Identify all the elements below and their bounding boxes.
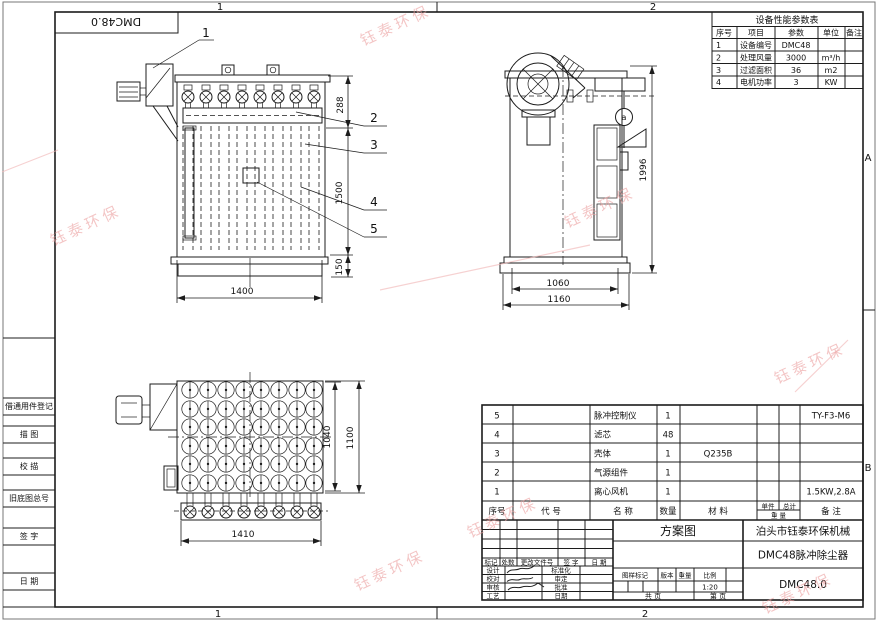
- dim-1060: 1060: [547, 279, 570, 289]
- bom-r5-qty: 1: [665, 412, 670, 422]
- sign-approve: 审定: [555, 574, 569, 583]
- scale-value: 1:20: [702, 584, 718, 592]
- bom-h-material: 材 料: [708, 506, 728, 517]
- sign-date: 日期: [555, 592, 569, 600]
- perf-r1-no: 1: [716, 41, 721, 50]
- watermark-text: 钰泰环保: [352, 546, 429, 594]
- perf-r4-no: 4: [716, 78, 721, 87]
- top-view: 1040 1100 1410: [116, 372, 365, 546]
- zone-bottom-1: 1: [215, 609, 221, 620]
- bom-h-weight: 重 量: [771, 512, 787, 520]
- dim-1100: 1100: [346, 426, 356, 449]
- front-dimensions: 288 1500 150 1400: [177, 76, 353, 303]
- zone-right-b: B: [865, 463, 872, 474]
- perf-r3-no: 3: [716, 66, 721, 75]
- front-view: 288 1500 150 1400 1 2 3 4 5: [117, 26, 387, 303]
- left-sidebar: 借通用件登记 描 图 校 描 旧底图总号 签 字 日 期: [3, 338, 55, 607]
- signature-scribble-2: [507, 578, 533, 582]
- bom-r5-note: TY-F3-M6: [811, 412, 851, 422]
- perf-r3-unit: m2: [825, 66, 838, 75]
- perf-r2-value: 3000: [786, 54, 806, 63]
- bom-h-code: 代 号: [541, 506, 561, 517]
- perf-h-unit: 单位: [823, 28, 839, 38]
- bom-h-name: 名 称: [613, 506, 633, 517]
- sidebar-label-tracing: 描 图: [20, 429, 39, 439]
- drawing-canvas: 1 2 1 2 A B DMC48.0 借通用件登记 描 图 校 描 旧底图总号…: [0, 0, 877, 622]
- dim-1996: 1996: [639, 158, 649, 181]
- zone-top-1: 1: [217, 2, 223, 13]
- sign-design: 设计: [487, 566, 501, 575]
- perf-r1-value: DMC48: [782, 41, 811, 50]
- bom-r1-qty: 1: [665, 488, 670, 498]
- dim-1160: 1160: [548, 295, 571, 305]
- callout-2: 2: [370, 111, 378, 125]
- top-manifold: [174, 493, 328, 520]
- access-box: [243, 168, 259, 183]
- bom-r5-name: 脉冲控制仪: [594, 411, 637, 422]
- perf-r4-unit: KW: [825, 78, 838, 87]
- meta-h-weight: 重量: [679, 572, 693, 580]
- sidebar-label-borrowed-parts: 借通用件登记: [5, 401, 53, 411]
- perf-h-item: 项目: [748, 29, 764, 38]
- access-door: [594, 125, 628, 240]
- product-name: DMC48脉冲除尘器: [758, 549, 849, 562]
- bom-r3-qty: 1: [665, 450, 670, 460]
- detail-label: a: [622, 113, 627, 122]
- pages-num: 第 页: [710, 592, 726, 601]
- drawing-sheet: 1 2 1 2 A B DMC48.0 借通用件登记 描 图 校 描 旧底图总号…: [0, 0, 877, 622]
- rev-h-mark: 标记: [485, 558, 499, 567]
- bom-r2-qty: 1: [665, 469, 670, 479]
- watermark-text: 钰泰环保: [562, 183, 639, 231]
- rev-h-date: 日 期: [591, 559, 607, 567]
- sidebar-label-date: 日 期: [20, 577, 39, 586]
- rev-h-count: 处数: [502, 558, 516, 567]
- bom-r3-seq: 3: [494, 450, 499, 460]
- signature-scribble-1: [507, 566, 534, 573]
- perf-r4-item: 电机功率: [740, 77, 772, 87]
- front-callouts: 1 2 3 4 5: [153, 26, 387, 237]
- sign-authorize: 批准: [555, 583, 569, 592]
- sign-process: 工艺: [487, 592, 501, 600]
- bom-r1-note: 1.5KW,2.8A: [806, 488, 855, 498]
- pages-total: 共 页: [645, 592, 661, 601]
- bom-r1-seq: 1: [494, 488, 499, 498]
- drawing-type: 方案图: [660, 523, 696, 538]
- perf-h-value: 参数: [788, 28, 804, 38]
- bom-h-unit-weight: 单件: [762, 502, 776, 511]
- callout-4: 4: [370, 195, 378, 209]
- bom-r2-name: 气源组件: [594, 468, 629, 479]
- meta-h-version: 版本: [661, 571, 675, 580]
- bom-h-total-weight: 总计: [783, 502, 797, 511]
- corner-code-label: DMC48.0: [91, 15, 141, 28]
- bom-r4-seq: 4: [494, 431, 499, 441]
- sign-standardize: 标准化: [551, 566, 571, 575]
- base-plate: [171, 257, 328, 264]
- zone-right-a: A: [865, 153, 872, 164]
- dim-1410: 1410: [232, 530, 255, 540]
- perf-r2-item: 处理风量: [740, 53, 772, 63]
- callout-5: 5: [370, 222, 378, 236]
- dim-1400: 1400: [231, 287, 254, 297]
- front-fan: [117, 64, 178, 141]
- lifting-lugs: [222, 65, 279, 75]
- dim-288: 288: [336, 96, 346, 113]
- dim-150: 150: [335, 258, 345, 275]
- perf-r2-no: 2: [716, 54, 721, 63]
- zone-bottom-2: 2: [642, 609, 648, 620]
- meta-h-scale: 比例: [704, 571, 717, 580]
- bom-h-note: 备 注: [821, 506, 841, 517]
- perf-h-note: 备注: [846, 28, 862, 38]
- side-view: a 1996 1060 1160: [500, 53, 657, 310]
- sign-proofread: 校对: [487, 574, 501, 583]
- meta-h-mark: 图样标记: [622, 571, 649, 580]
- rev-h-doc: 更改文件号: [521, 558, 554, 567]
- sidebar-label-old-drawing-no: 旧底图总号: [9, 493, 49, 503]
- perf-r1-item: 设备编号: [740, 40, 772, 50]
- company-name: 泊头市钰泰环保机械: [756, 525, 851, 538]
- sheet-frame: 1 2 1 2 A B DMC48.0: [3, 2, 875, 620]
- bom-r1-name: 离心风机: [594, 487, 629, 498]
- watermark-text: 钰泰环保: [48, 201, 125, 249]
- watermark-text: 钰泰环保: [772, 339, 849, 387]
- perf-r2-unit: m³/h: [822, 54, 841, 63]
- sidebar-label-check-tracing: 校 描: [20, 461, 39, 471]
- watermark-text: 钰泰环保: [358, 1, 435, 49]
- callout-3: 3: [370, 138, 378, 152]
- bom-r4-name: 滤芯: [594, 430, 612, 441]
- signature-scribble-3: [508, 583, 544, 590]
- bom-r5-seq: 5: [494, 412, 499, 422]
- top-fan: [116, 384, 177, 430]
- bom-h-qty: 数量: [659, 506, 677, 517]
- perf-h-no: 序号: [716, 28, 732, 38]
- filter-cartridge-grid: [182, 382, 322, 491]
- sidebar-label-signature: 签 字: [20, 531, 39, 541]
- watermark-text: 钰泰环保: [760, 569, 837, 617]
- perf-table-title: 设备性能参数表: [755, 14, 818, 26]
- rev-h-sign: 签 字: [563, 558, 579, 567]
- perf-r3-item: 过滤面积: [740, 65, 772, 75]
- bom-r2-seq: 2: [494, 469, 499, 479]
- bom-r3-material: Q235B: [704, 450, 733, 460]
- perf-r4-value: 3: [793, 78, 798, 87]
- bom-r4-qty: 48: [663, 431, 674, 441]
- zone-top-2: 2: [650, 2, 656, 13]
- performance-table: 设备性能参数表 序号 项目 参数 单位 备注 1 设备编号 DMC48 2 处理…: [712, 12, 863, 89]
- perf-r3-value: 36: [791, 66, 801, 75]
- dim-1040: 1040: [323, 425, 333, 448]
- pulse-valves: [182, 85, 320, 108]
- bom-r3-name: 壳体: [594, 449, 612, 460]
- watermarks: 钰泰环保 钰泰环保 钰泰环保 钰泰环保 钰泰环保 钰泰环保 钰泰环保: [2, 1, 848, 617]
- callout-1: 1: [202, 26, 210, 40]
- sign-review: 审核: [487, 583, 501, 592]
- side-inlet-box: [164, 466, 178, 490]
- filter-bags: [183, 126, 319, 250]
